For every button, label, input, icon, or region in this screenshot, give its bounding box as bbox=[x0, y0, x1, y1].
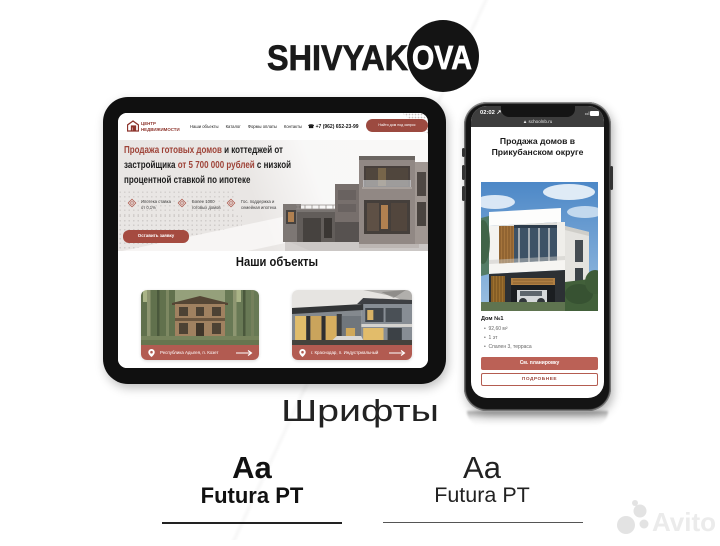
svg-text:Avito: Avito bbox=[652, 507, 716, 537]
svg-text:OVA: OVA bbox=[412, 39, 472, 76]
svg-text:SHIVYAK: SHIVYAK bbox=[267, 39, 408, 78]
